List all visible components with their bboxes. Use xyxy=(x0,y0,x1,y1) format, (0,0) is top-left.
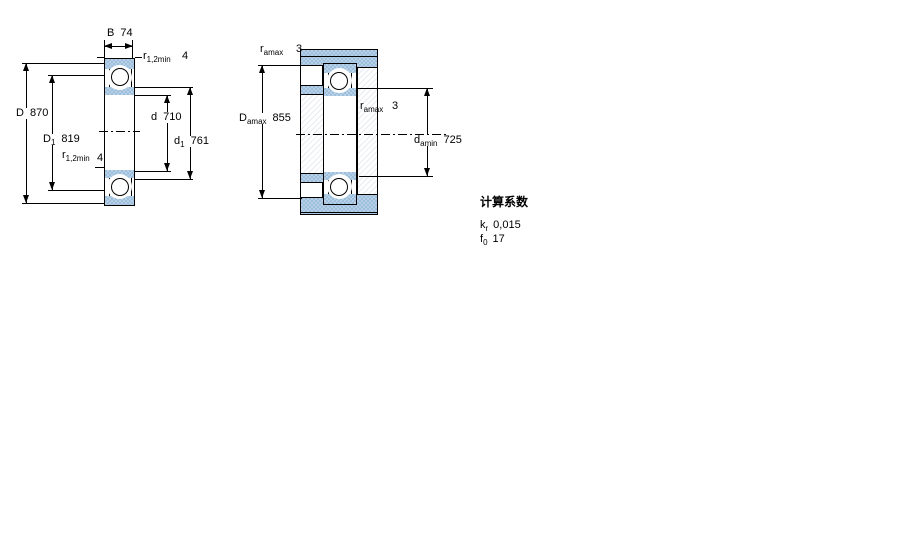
arrowhead xyxy=(259,190,265,198)
arrowhead xyxy=(187,171,193,179)
factor-f0: f017 xyxy=(480,233,505,246)
label-r12min-top: r1,2min xyxy=(142,51,172,62)
arrowhead xyxy=(23,63,29,71)
arrowhead xyxy=(259,65,265,73)
dimension-line-d xyxy=(167,95,168,171)
arrowhead xyxy=(49,182,55,190)
housing-bore-line xyxy=(301,212,377,213)
arrowhead xyxy=(187,87,193,95)
label-d: d710 xyxy=(150,112,182,123)
ball-top xyxy=(111,68,129,86)
arrowhead xyxy=(49,75,55,83)
dimension-line-D1 xyxy=(52,75,53,190)
label-r12min-top-value: 4 xyxy=(181,51,189,62)
label-B: B74 xyxy=(106,28,134,39)
extension-line xyxy=(48,75,104,76)
leader-stub xyxy=(135,57,142,58)
label-D: D870 xyxy=(15,108,49,119)
dimension-line-d1 xyxy=(190,87,191,179)
arrowhead xyxy=(164,95,170,103)
extension-line xyxy=(359,176,433,177)
arrowhead xyxy=(424,168,430,176)
extension-line xyxy=(135,179,193,180)
bearing-section-left xyxy=(104,58,135,206)
extension-line xyxy=(135,87,193,88)
bearing-drawing-page: B74 D870 D1819 r1,2min xyxy=(0,0,900,560)
label-Damax: Damax855 xyxy=(238,113,292,124)
arrowhead xyxy=(424,88,430,96)
centerline xyxy=(296,134,447,135)
housing-shoulder-gap-top xyxy=(300,65,323,85)
arrowhead xyxy=(23,195,29,203)
label-r12min-mid-value: 4 xyxy=(96,153,104,164)
label-D1: D1819 xyxy=(42,134,81,145)
centerline xyxy=(99,131,140,132)
factor-kr: kr0,015 xyxy=(480,219,521,232)
label-ramax-top-value: 3 xyxy=(295,44,303,55)
label-damin: damin725 xyxy=(413,135,463,146)
label-d1: d1761 xyxy=(173,136,210,147)
housing-shoulder-gap-bottom xyxy=(300,182,323,198)
dimension-line-Damax xyxy=(262,65,263,198)
dimension-line-D xyxy=(26,63,27,203)
extension-line xyxy=(48,190,104,191)
extension-line xyxy=(135,171,171,172)
arrowhead xyxy=(125,43,133,49)
extension-line xyxy=(22,203,104,204)
extension-line xyxy=(357,88,433,89)
extension-line xyxy=(258,198,302,199)
extension-line xyxy=(22,63,104,64)
label-ramax-top: ramax xyxy=(259,44,284,55)
dimension-line-damin xyxy=(427,88,428,177)
leader-stub xyxy=(97,57,104,58)
ball-bottom xyxy=(111,178,129,196)
label-ramax-right: ramax xyxy=(359,101,384,112)
arrowhead xyxy=(164,163,170,171)
label-r12min-mid: r1,2min xyxy=(61,150,91,161)
ball-top xyxy=(330,72,348,90)
housing-bore-line xyxy=(301,56,377,57)
label-ramax-right-value: 3 xyxy=(391,101,399,112)
arrowhead xyxy=(104,43,112,49)
leader-stub xyxy=(95,167,104,168)
calculation-factors-title: 计算系数 xyxy=(480,196,528,209)
